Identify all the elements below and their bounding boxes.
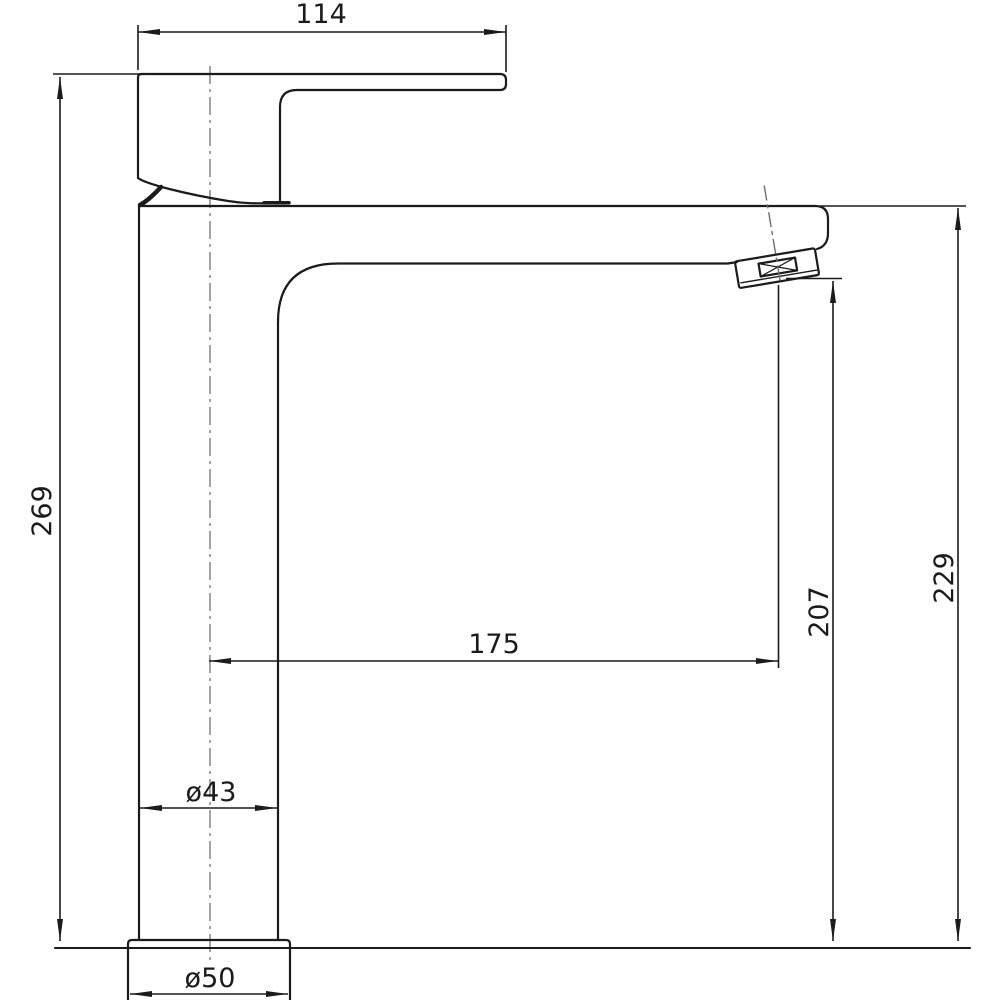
body-and-spout: [139, 206, 828, 939]
spout-underside: [278, 262, 737, 322]
dim-outlet-height-label: 207: [804, 586, 835, 638]
aerator-assembly: [723, 180, 819, 291]
handle-wedge-thick: [140, 187, 161, 205]
dim-base-diameter-label: ø50: [185, 963, 236, 994]
dim-body-diameter-label: ø43: [186, 777, 237, 808]
dimension-labels: 114 269 175 207 229 ø43 ø50: [27, 0, 960, 994]
handle-lever: [138, 74, 506, 205]
aerator-axis-centerline: [764, 186, 780, 284]
dim-spout-reach: [209, 285, 779, 668]
dim-overall-height-label: 269: [27, 485, 58, 537]
dimension-lines: [53, 25, 966, 994]
dim-handle-length-label: 114: [295, 0, 347, 30]
faucet-technical-drawing: 114 269 175 207 229 ø43 ø50: [0, 0, 1000, 1000]
dim-overall-height: [53, 74, 150, 941]
technical-drawing-page: 114 269 175 207 229 ø43 ø50: [0, 0, 1000, 1000]
spout-top-and-right-edge: [139, 206, 828, 249]
handle-outline: [138, 74, 506, 203]
dim-spout-top-height-label: 229: [929, 552, 960, 604]
dim-spout-reach-label: 175: [468, 629, 520, 660]
dim-handle-length: [138, 25, 506, 72]
